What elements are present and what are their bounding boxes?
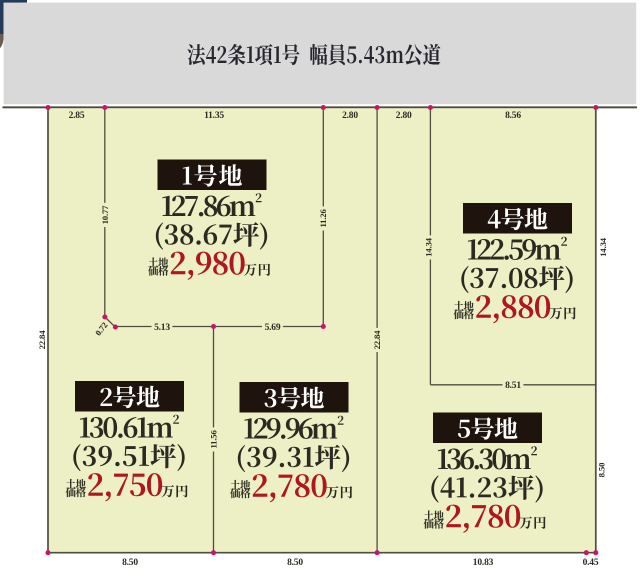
svg-text:0.45: 0.45 [583, 558, 599, 568]
svg-text:10.77: 10.77 [100, 205, 110, 225]
svg-text:2.80: 2.80 [342, 111, 358, 121]
svg-text:5.13: 5.13 [154, 323, 170, 333]
svg-text:10.83: 10.83 [473, 558, 494, 568]
svg-text:8.50: 8.50 [597, 462, 607, 477]
svg-text:11.26: 11.26 [318, 209, 328, 228]
svg-text:22.84: 22.84 [37, 330, 47, 350]
svg-text:2.80: 2.80 [396, 111, 412, 121]
svg-text:14.34: 14.34 [424, 237, 434, 257]
svg-text:8.56: 8.56 [505, 111, 521, 121]
svg-text:8.51: 8.51 [505, 381, 521, 391]
svg-text:8.50: 8.50 [122, 558, 138, 568]
svg-text:2.85: 2.85 [69, 111, 85, 121]
svg-text:11.56: 11.56 [209, 430, 219, 449]
svg-text:14.34: 14.34 [598, 237, 608, 257]
svg-text:5.69: 5.69 [265, 323, 281, 333]
svg-text:8.50: 8.50 [287, 558, 303, 568]
svg-text:11.35: 11.35 [204, 111, 224, 121]
svg-text:22.84: 22.84 [372, 330, 382, 350]
